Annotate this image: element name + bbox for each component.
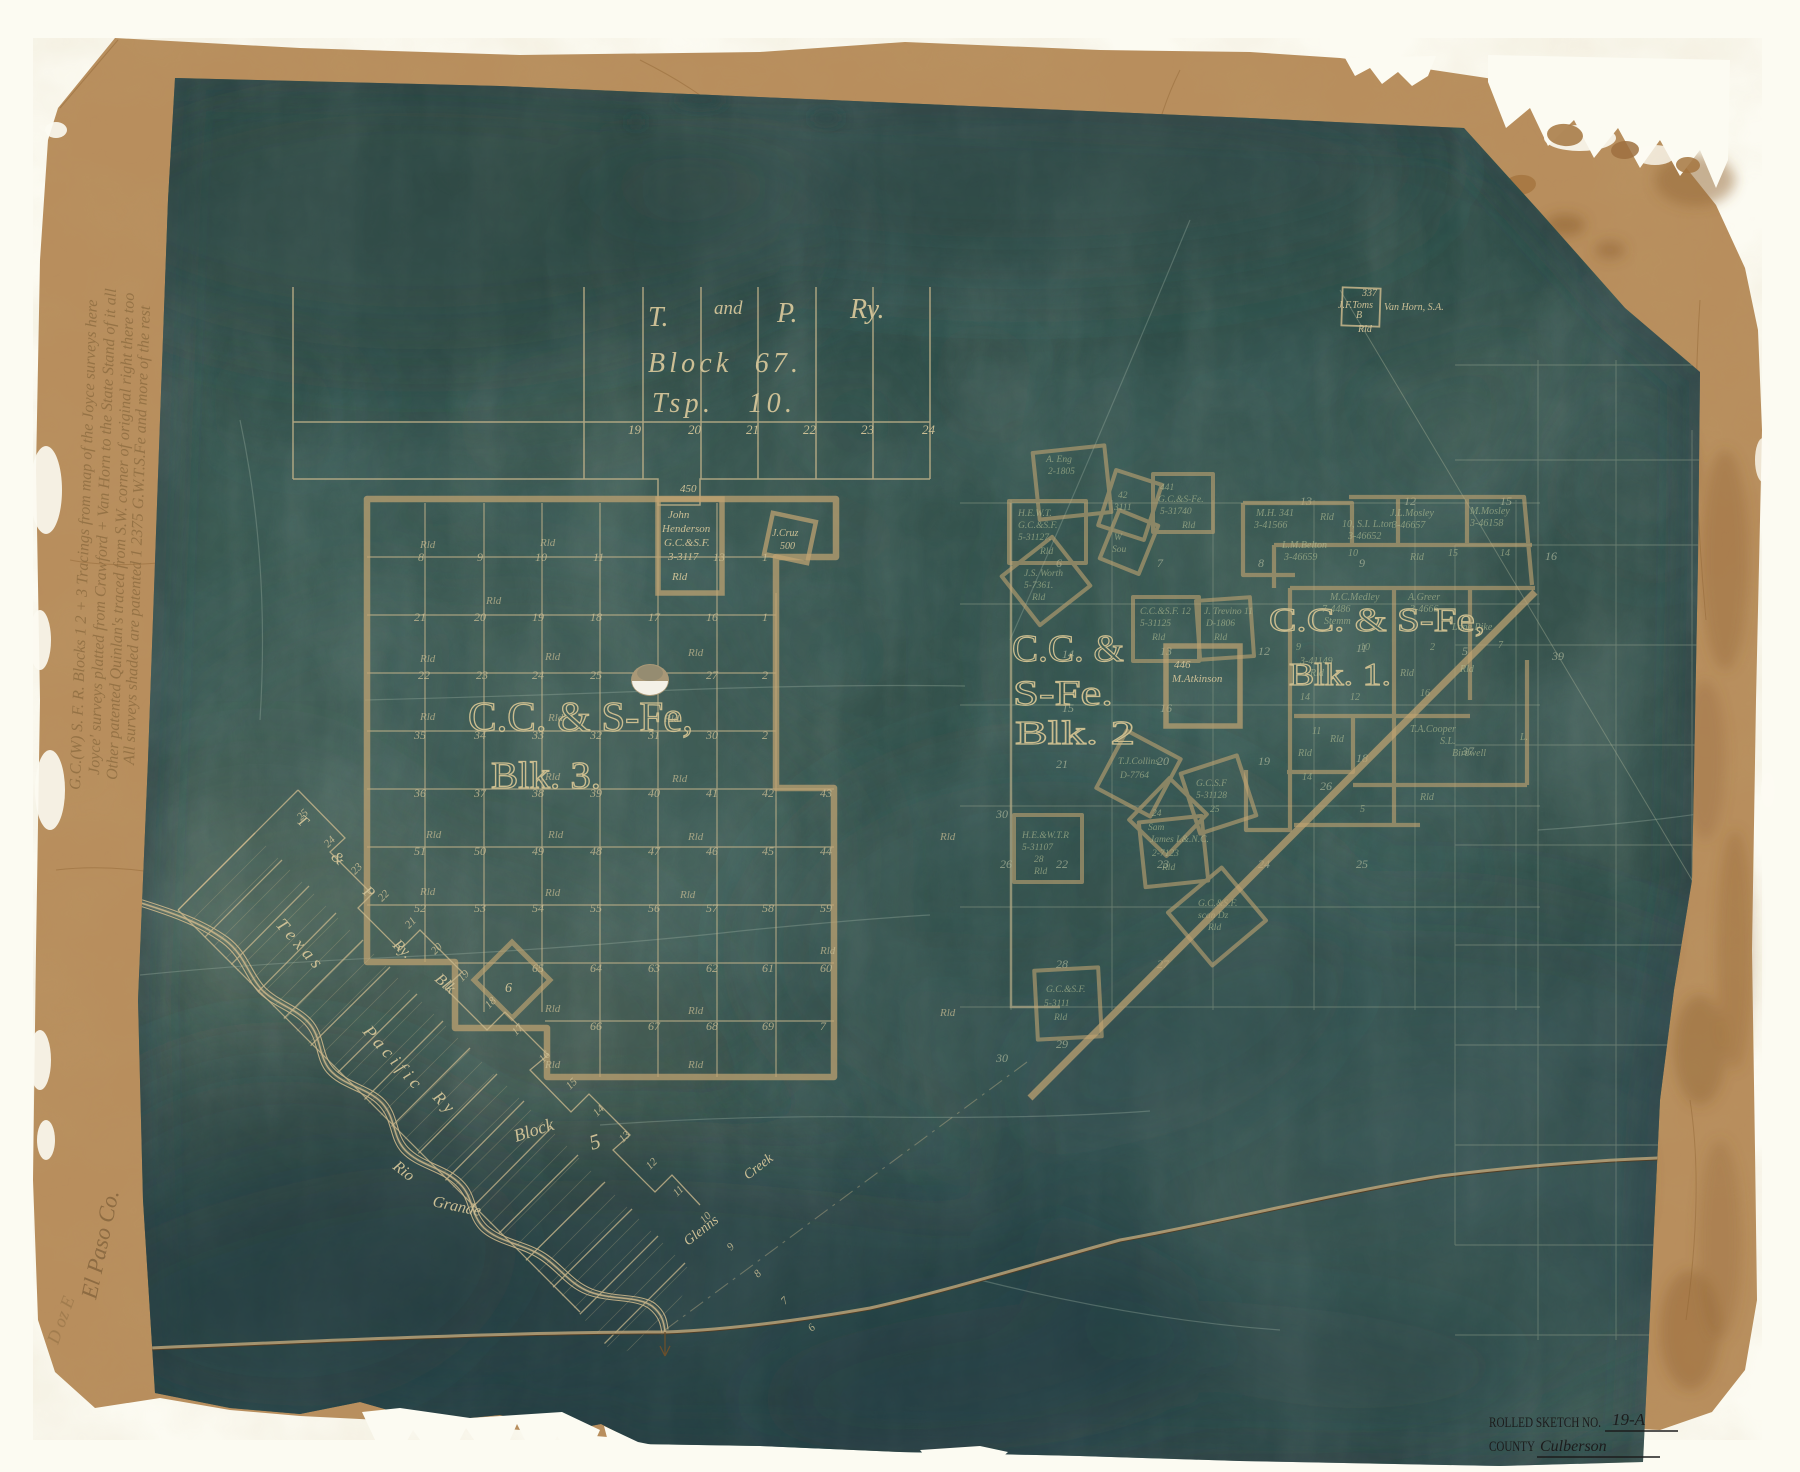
svg-text:Rld: Rld [1039,547,1053,557]
svg-text:H.E.&W.T.R: H.E.&W.T.R [1021,831,1069,841]
svg-text:8: 8 [1258,556,1264,570]
svg-text:21: 21 [1056,757,1068,771]
svg-text:Rld: Rld [485,595,502,607]
svg-text:A. Eng: A. Eng [1045,455,1072,465]
svg-text:Rld: Rld [1207,923,1221,933]
svg-text:24: 24 [922,422,936,437]
svg-text:Rld: Rld [1053,1013,1067,1023]
svg-text:39: 39 [1551,649,1564,663]
svg-text:15: 15 [1448,548,1458,559]
svg-text:52: 52 [414,901,426,915]
svg-text:Rld: Rld [419,539,436,551]
svg-text:30: 30 [995,807,1008,821]
svg-text:Rld: Rld [1033,867,1047,877]
svg-text:Rld: Rld [1357,324,1373,335]
svg-text:C.C.&S.F. 12: C.C.&S.F. 12 [1140,607,1191,617]
svg-text:19: 19 [532,610,544,624]
svg-text:41: 41 [706,786,718,800]
svg-text:Ry.: Ry. [849,294,884,325]
svg-text:42: 42 [762,786,774,800]
svg-text:16: 16 [1420,688,1430,699]
svg-text:Rld: Rld [687,647,704,659]
svg-text:Rld: Rld [547,829,564,841]
svg-text:G.C.S.F: G.C.S.F [1196,779,1227,789]
svg-text:40: 40 [648,786,660,800]
svg-text:H.E.W.T.: H.E.W.T. [1017,509,1052,519]
svg-text:Rld: Rld [819,945,836,957]
svg-text:Rld: Rld [1151,633,1165,643]
svg-text:Birdwell: Birdwell [1452,748,1486,759]
svg-text:36: 36 [413,786,426,800]
svg-text:25: 25 [1210,805,1220,815]
svg-text:22: 22 [803,422,817,437]
svg-text:Rld: Rld [544,1003,561,1015]
svg-text:60: 60 [820,961,832,975]
svg-text:9: 9 [1296,642,1301,653]
svg-text:44: 44 [820,844,832,858]
svg-text:24: 24 [1152,809,1162,819]
svg-text:14: 14 [1300,692,1310,703]
svg-text:48: 48 [590,844,602,858]
svg-text:30: 30 [995,1051,1008,1065]
svg-text:53: 53 [474,901,486,915]
svg-text:G.C.&S.F.: G.C.&S.F. [1046,985,1085,995]
svg-text:23: 23 [476,668,488,682]
svg-text:Rld: Rld [539,537,556,549]
svg-text:Rld: Rld [1161,863,1175,873]
svg-text:D-7764: D-7764 [1119,771,1149,781]
svg-text:Rld: Rld [939,831,956,843]
svg-text:64: 64 [590,961,602,975]
svg-text:7: 7 [1157,556,1164,570]
svg-text:12: 12 [1258,644,1270,658]
svg-text:23: 23 [861,422,875,437]
svg-text:49: 49 [532,844,544,858]
svg-text:T.: T. [648,302,669,333]
svg-text:Rld: Rld [939,1007,956,1019]
svg-text:28: 28 [1034,855,1044,865]
svg-text:337: 337 [1361,288,1378,299]
svg-text:17: 17 [648,610,661,624]
svg-text:L.: L. [1519,732,1528,743]
svg-text:J.L.Mosley: J.L.Mosley [1390,508,1434,519]
svg-text:21: 21 [414,610,426,624]
svg-text:9: 9 [1359,556,1365,570]
svg-text:1: 1 [762,610,768,624]
svg-text:47: 47 [648,844,661,858]
svg-text:Rld: Rld [679,889,696,901]
svg-text:11: 11 [593,550,604,564]
svg-text:69: 69 [762,1019,774,1033]
svg-text:8: 8 [418,550,424,564]
svg-text:Sou: Sou [1112,545,1127,555]
svg-text:5-31740: 5-31740 [1160,507,1192,517]
svg-text:58: 58 [762,901,774,915]
svg-text:G.C.&S.F.: G.C.&S.F. [1018,521,1057,531]
svg-text:D-1806: D-1806 [1205,619,1235,629]
svg-text:19: 19 [1258,754,1270,768]
svg-text:T.J.Collins: T.J.Collins [1118,757,1159,767]
svg-text:Rld: Rld [1399,668,1415,679]
svg-text:Henderson: Henderson [661,523,711,535]
svg-text:5-31107: 5-31107 [1022,843,1054,853]
svg-text:10: 10 [1360,642,1370,653]
svg-text:Blk. 2: Blk. 2 [1015,715,1135,752]
svg-text:Rld: Rld [425,829,442,841]
svg-text:Blk. 1.: Blk. 1. [1289,656,1391,692]
svg-text:Rld: Rld [419,711,436,723]
svg-text:45: 45 [762,844,774,858]
svg-text:3-46659: 3-46659 [1283,552,1317,563]
svg-text:2: 2 [762,728,768,742]
svg-text:441: 441 [1160,483,1174,493]
svg-text:21: 21 [746,422,759,437]
svg-text:C.C. &: C.C. & [1012,628,1124,670]
svg-text:50: 50 [474,844,486,858]
svg-text:3-46158: 3-46158 [1469,518,1503,529]
svg-text:5: 5 [1360,804,1365,815]
svg-text:65: 65 [532,961,544,975]
svg-text:Rld: Rld [1419,792,1435,803]
svg-text:14: 14 [1500,548,1510,559]
svg-text:63: 63 [648,961,660,975]
svg-text:3-46657: 3-46657 [1391,520,1426,531]
svg-text:5-31125: 5-31125 [1140,619,1171,629]
svg-text:446: 446 [1174,659,1191,671]
svg-text:16: 16 [706,610,718,624]
svg-text:G.C.&S.F.: G.C.&S.F. [664,537,710,549]
svg-text:3111: 3111 [1113,503,1132,513]
svg-text:Rld: Rld [1213,633,1227,643]
svg-text:30: 30 [705,728,718,742]
svg-text:ROLLED SKETCH NO.: ROLLED SKETCH NO. [1489,1415,1601,1431]
svg-text:5-31128: 5-31128 [1196,791,1227,801]
svg-text:T.A.Cooper: T.A.Cooper [1410,724,1456,735]
svg-text:M.Mosley: M.Mosley [1469,506,1510,517]
svg-text:26: 26 [1320,779,1332,793]
svg-text:56: 56 [648,901,660,915]
svg-text:67: 67 [648,1019,661,1033]
svg-text:16: 16 [1545,549,1557,563]
svg-text:Rld: Rld [1297,748,1313,759]
svg-text:6: 6 [505,981,512,996]
svg-text:3-46652: 3-46652 [1347,531,1381,542]
svg-text:1: 1 [762,550,768,564]
svg-text:24: 24 [532,668,544,682]
svg-text:12: 12 [1350,692,1360,703]
svg-text:46: 46 [706,844,718,858]
svg-text:Culberson: Culberson [1540,1438,1607,1455]
svg-text:Rld: Rld [544,651,561,663]
svg-text:G.C.&S-Fe.: G.C.&S-Fe. [1158,495,1204,505]
svg-text:M.H. 341: M.H. 341 [1255,508,1294,519]
svg-text:25: 25 [1356,857,1368,871]
svg-text:20: 20 [688,422,702,437]
svg-text:Rld: Rld [687,1005,704,1017]
svg-text:J.S. Worth: J.S. Worth [1024,569,1063,579]
svg-text:9: 9 [477,550,483,564]
svg-text:M.Atkinson: M.Atkinson [1171,673,1223,685]
svg-text:10: 10 [1348,548,1358,559]
svg-text:L.M.Belton: L.M.Belton [1281,540,1327,551]
svg-text:10, S.I. L.ton: 10, S.I. L.ton [1342,519,1394,530]
svg-text:25: 25 [590,668,602,682]
svg-text:22: 22 [1056,857,1068,871]
svg-text:13: 13 [713,550,725,564]
svg-text:5-3111: 5-3111 [1044,999,1070,1009]
svg-text:57: 57 [706,901,719,915]
svg-text:2: 2 [762,668,768,682]
svg-text:J.Cruz: J.Cruz [772,528,799,539]
svg-text:C.C. & S-Fe,: C.C. & S-Fe, [1269,602,1485,639]
svg-text:B: B [1356,310,1362,321]
svg-text:James I.&.N.C.: James I.&.N.C. [1150,835,1209,845]
svg-text:John: John [668,509,690,521]
svg-text:5-31127.: 5-31127. [1018,533,1051,543]
svg-text:Rld: Rld [671,571,688,583]
svg-text:Rld: Rld [1329,734,1345,745]
svg-text:22: 22 [418,668,430,682]
svg-text:68: 68 [706,1019,718,1033]
svg-text:14: 14 [1302,772,1312,783]
svg-text:19-A: 19-A [1612,1410,1646,1429]
svg-text:Rld: Rld [419,653,436,665]
svg-text:S.L.: S.L. [1440,736,1456,747]
svg-text:37: 37 [473,786,487,800]
svg-text:and: and [714,298,743,319]
svg-text:Rld: Rld [687,1059,704,1071]
svg-text:Block 67.: Block 67. [648,348,798,379]
svg-text:3-3117: 3-3117 [667,551,699,563]
svg-text:S-Fe.: S-Fe. [1013,673,1113,713]
svg-text:27: 27 [706,668,719,682]
svg-text:Rld: Rld [1459,664,1475,675]
svg-text:P.: P. [776,298,798,329]
svg-text:450: 450 [680,483,697,495]
svg-text:3-41566: 3-41566 [1253,520,1287,531]
svg-text:10: 10 [535,550,547,564]
svg-text:2: 2 [1430,642,1435,653]
svg-text:51: 51 [414,844,426,858]
svg-text:20: 20 [474,610,486,624]
svg-text:11: 11 [1312,726,1321,737]
svg-text:Rld: Rld [687,831,704,843]
svg-text:Van Horn, S.A.: Van Horn, S.A. [1384,302,1444,313]
svg-text:Rld: Rld [1181,521,1195,531]
svg-text:54: 54 [532,901,544,915]
svg-text:COUNTY: COUNTY [1489,1439,1535,1455]
svg-text:500: 500 [780,541,795,552]
svg-text:66: 66 [590,1019,602,1033]
svg-text:C.C. & S-Fe,: C.C. & S-Fe, [468,695,693,741]
svg-text:59: 59 [820,901,832,915]
svg-text:Blk. 3.: Blk. 3. [491,755,601,797]
svg-text:Rld: Rld [1409,552,1425,563]
svg-text:Rld: Rld [671,773,688,785]
svg-text:Rld: Rld [544,887,561,899]
svg-text:Rld: Rld [419,886,436,898]
svg-text:43: 43 [820,786,832,800]
svg-text:18: 18 [590,610,602,624]
svg-text:2-1805: 2-1805 [1048,467,1075,477]
svg-text:Rld: Rld [1031,593,1045,603]
svg-text:62: 62 [706,961,718,975]
svg-text:7: 7 [820,1019,827,1033]
svg-text:42: 42 [1118,491,1128,501]
svg-text:J. Trevino 11: J. Trevino 11 [1204,607,1253,617]
svg-text:35: 35 [413,728,426,742]
svg-text:2-7123: 2-7123 [1152,849,1179,859]
svg-text:Rld: Rld [1319,512,1335,523]
svg-text:Sam: Sam [1148,823,1165,833]
svg-text:W: W [1114,533,1123,543]
svg-text:61: 61 [762,961,774,975]
svg-text:55: 55 [590,901,602,915]
svg-text:19: 19 [628,422,642,437]
svg-text:5-7361.: 5-7361. [1024,581,1053,591]
svg-text:26: 26 [1000,857,1012,871]
